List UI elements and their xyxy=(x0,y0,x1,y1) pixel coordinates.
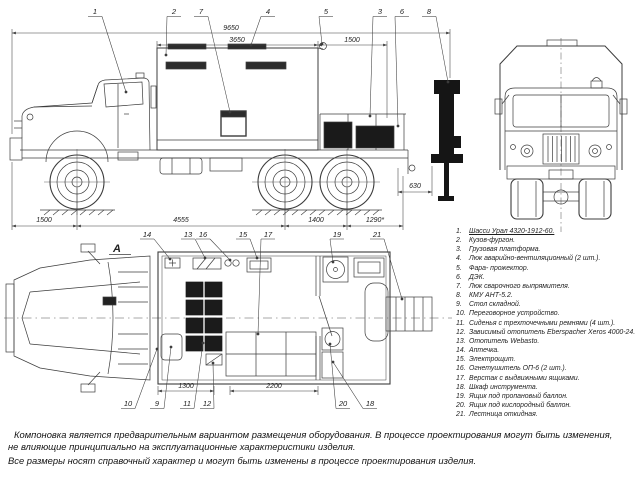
part-number: 16. xyxy=(456,364,469,373)
callout-number: 11 xyxy=(183,399,191,408)
parts-list-item: 12.Зависимый отопитель Eberspacher Xeros… xyxy=(456,328,640,337)
part-number: 15. xyxy=(456,355,469,364)
side-vent xyxy=(166,62,206,69)
side-view xyxy=(10,43,463,216)
callout-number: 6 xyxy=(400,7,405,16)
siren-unit xyxy=(103,297,116,305)
dim-label: 4555 xyxy=(173,217,189,224)
callout-number: 13 xyxy=(184,230,193,239)
cab-window xyxy=(104,82,143,107)
front-view xyxy=(495,38,627,232)
part-number: 14. xyxy=(456,346,469,355)
part-label: Стол складной. xyxy=(469,300,521,309)
callout-number: 3 xyxy=(378,7,383,16)
callout-number: 16 xyxy=(199,230,208,239)
callout-number: 10 xyxy=(124,399,133,408)
part-number: 9. xyxy=(456,300,469,309)
part-number: 5. xyxy=(456,264,469,273)
callout-number: 18 xyxy=(366,399,375,408)
callout-number: 19 xyxy=(333,230,342,239)
dim-label: 1300 xyxy=(178,383,194,390)
callout-number: 15 xyxy=(239,230,248,239)
parts-list-item: 10.Переговорное устройство. xyxy=(456,309,640,318)
part-label: Шасси Урал 4320-1912-60. xyxy=(469,227,554,236)
front-bumper xyxy=(10,138,22,160)
parts-list-item: 21.Лестница откидная. xyxy=(456,410,640,419)
fire-extinguisher-icon xyxy=(233,260,239,266)
callout-number: 17 xyxy=(264,230,273,239)
callout-number: 20 xyxy=(338,399,348,408)
callout-number: 14 xyxy=(143,230,151,239)
part-label: Верстак с выдвижными ящиками. xyxy=(469,374,580,383)
headlight-icon xyxy=(27,114,33,120)
part-number: 6. xyxy=(456,273,469,282)
callout-number: 5 xyxy=(324,7,329,16)
parts-list-item: 16.Огнетушитель ОП-6 (2 шт.). xyxy=(456,364,640,373)
part-label: Грузовая платформа. xyxy=(469,245,540,254)
parts-list-item: 5.Фара- прожектор. xyxy=(456,264,640,273)
callout-number: 12 xyxy=(203,399,212,408)
dim-label: 1500 xyxy=(36,217,52,224)
part-label: Люк аварийно-вентиляционный (2 шт.). xyxy=(469,254,600,263)
plan-view: 1300 2200 А xyxy=(4,243,452,395)
callout-number: 21 xyxy=(372,230,381,239)
part-label: Переговорное устройство. xyxy=(469,309,560,318)
tool-cabinet xyxy=(322,352,343,378)
part-label: Отопитель Webasto. xyxy=(469,337,539,346)
part-number: 4. xyxy=(456,254,469,263)
parts-list-item: 8.КМУ АНТ-5.2. xyxy=(456,291,640,300)
tool-box xyxy=(210,158,242,171)
plan-callouts-top: 14 13 16 15 17 19 21 xyxy=(140,230,403,335)
part-label: Электрощит. xyxy=(469,355,515,364)
dim-label: 630 xyxy=(409,183,421,190)
part-number: 13. xyxy=(456,337,469,346)
parts-list-item: 2.Кузов-фургон. xyxy=(456,236,640,245)
dim-label: 9650 xyxy=(223,25,239,32)
door-swing xyxy=(319,296,332,336)
dim-label: 3650 xyxy=(229,37,245,44)
mirror-icon xyxy=(620,99,627,114)
part-label: ДЭК. xyxy=(469,273,485,282)
headlight-icon xyxy=(589,145,601,157)
crane-kmu xyxy=(431,80,463,201)
dim-label: 1290* xyxy=(366,217,385,224)
parts-list-item: 3.Грузовая платформа. xyxy=(456,245,640,254)
part-label: Ящик под пропановый баллон. xyxy=(469,392,568,401)
parts-list-item: 19.Ящик под пропановый баллон. xyxy=(456,392,640,401)
part-label: КМУ АНТ-5.2. xyxy=(469,291,513,300)
parts-list-item: 15.Электрощит. xyxy=(456,355,640,364)
parts-list-item: 14.Аптечка. xyxy=(456,346,640,355)
part-number: 18. xyxy=(456,383,469,392)
side-vent xyxy=(246,62,286,69)
part-number: 19. xyxy=(456,392,469,401)
mirror-icon xyxy=(81,244,95,252)
part-number: 7. xyxy=(456,282,469,291)
note-line: Все размеры носят справочный характер и … xyxy=(8,455,638,467)
dim-label: 2200 xyxy=(265,383,282,390)
parts-list-item: 4.Люк аварийно-вентиляционный (2 шт.). xyxy=(456,254,640,263)
beacon-icon xyxy=(136,73,144,78)
parts-list-item: 18.Шкаф инструмента. xyxy=(456,383,640,392)
headlight-icon xyxy=(521,145,533,157)
parts-list-item: 7.Люк сварочного выпрямителя. xyxy=(456,282,640,291)
note-line: Компоновка является предварительным вари… xyxy=(8,429,638,441)
view-label: А xyxy=(112,243,121,255)
parts-list-item: 6.ДЭК. xyxy=(456,273,640,282)
part-label: Лестница откидная. xyxy=(469,410,538,419)
dim-label: 1500 xyxy=(344,37,360,44)
part-number: 1. xyxy=(456,227,469,236)
part-label: Аптечка. xyxy=(469,346,499,355)
part-number: 10. xyxy=(456,309,469,318)
dim-label: 1400 xyxy=(308,217,324,224)
callout-number: 8 xyxy=(427,7,432,16)
callout-number: 2 xyxy=(171,7,177,16)
callout-number: 9 xyxy=(155,399,160,408)
part-label: Зависимый отопитель Eberspacher Xeros 40… xyxy=(469,328,635,337)
wheels xyxy=(44,149,380,215)
cab-outline xyxy=(22,78,150,150)
part-number: 20. xyxy=(456,401,469,410)
mirror-icon xyxy=(495,99,502,114)
part-label: Шкаф инструмента. xyxy=(469,383,538,392)
parts-list-item: 17.Верстак с выдвижными ящиками. xyxy=(456,374,640,383)
part-label: Сиденья с трехточечными ремнями (4 шт.). xyxy=(469,319,615,328)
notes: Компоновка является предварительным вари… xyxy=(8,429,638,467)
callout-number: 4 xyxy=(266,7,270,16)
mirror-icon xyxy=(81,384,95,392)
electric-panel xyxy=(247,258,271,272)
platform-equipment xyxy=(324,122,352,148)
part-number: 17. xyxy=(456,374,469,383)
part-label: Фара- прожектор. xyxy=(469,264,529,273)
part-label: Люк сварочного выпрямителя. xyxy=(469,282,570,291)
roof-hatch-icon xyxy=(547,40,577,46)
ground-line xyxy=(40,210,382,215)
part-number: 12. xyxy=(456,328,469,337)
part-number: 21. xyxy=(456,410,469,419)
seats xyxy=(186,282,222,351)
part-label: Огнетушитель ОП-6 (2 шт.). xyxy=(469,364,567,373)
parts-list-item: 1.Шасси Урал 4320-1912-60. xyxy=(456,227,640,236)
part-number: 8. xyxy=(456,291,469,300)
part-number: 11. xyxy=(456,319,469,328)
part-number: 3. xyxy=(456,245,469,254)
cab-step xyxy=(118,152,138,160)
air-intake xyxy=(151,86,156,108)
callout-number: 1 xyxy=(93,7,97,16)
folding-ladder xyxy=(386,297,432,331)
note-line: не влияющие принципиально на эксплуатаци… xyxy=(8,441,638,453)
callout-number: 7 xyxy=(199,7,204,16)
part-label: Кузов-фургон. xyxy=(469,236,515,245)
spare-wheel xyxy=(365,283,388,341)
beacon-icon xyxy=(591,81,602,88)
parts-list-item: 9.Стол складной. xyxy=(456,300,640,309)
parts-list-item: 20.Ящик под кислородный баллон. xyxy=(456,401,640,410)
fuel-tank xyxy=(160,158,202,174)
drawing-sheet: 9650 3650 1500 1500 4555 1400 1290* 630 … xyxy=(0,0,640,480)
parts-list-item: 11.Сиденья с трехточечными ремнями (4 шт… xyxy=(456,319,640,328)
parts-list-item: 13.Отопитель Webasto. xyxy=(456,337,640,346)
part-label: Ящик под кислородный баллон. xyxy=(469,401,571,410)
dek-unit xyxy=(356,126,394,148)
parts-list: 1.Шасси Урал 4320-1912-60. 2.Кузов-фурго… xyxy=(456,227,640,419)
part-number: 2. xyxy=(456,236,469,245)
rear-equipment xyxy=(354,258,384,277)
